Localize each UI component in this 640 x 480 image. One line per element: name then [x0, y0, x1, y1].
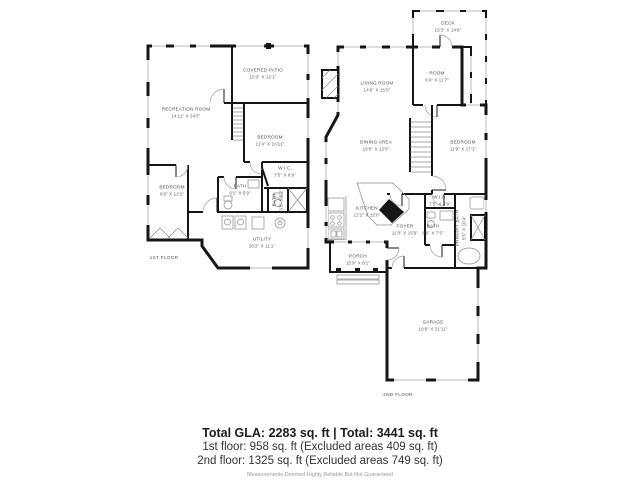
- room-name: BEDROOM: [159, 184, 184, 191]
- floorplan-page: COVERED PATIO 15'3" X 12'1" RECREATION R…: [0, 0, 640, 480]
- room-label-room: ROOM 9'4" X 11'7": [425, 70, 449, 83]
- room-label-wic-1f: W.I.C. 7'5" X 8'9": [274, 165, 296, 178]
- room-label-utility: UTILITY 20'2" X 11'1": [249, 236, 275, 249]
- room-dims: 11'9" X 17'1": [450, 146, 476, 152]
- total-gla-line: Total GLA: 2283 sq. ft | Total: 3441 sq.…: [0, 426, 640, 440]
- room-label-covered-patio: COVERED PATIO 15'3" X 12'1": [243, 67, 283, 80]
- room-name: W.I.C.: [429, 194, 451, 201]
- room-name: COVERED PATIO: [243, 67, 283, 74]
- floorplan-drawing: [0, 0, 640, 480]
- room-label-bath-2f: BATH 8'5" X 7'5": [422, 223, 444, 236]
- room-label-wic-2f: W.I.C. 7'5" X 4'9": [429, 194, 451, 207]
- room-label-garage: GARAGE 19'8" X 21'11": [419, 319, 448, 332]
- room-label-deck: DECK 15'3" X 14'8": [435, 20, 462, 33]
- room-name: BEDROOM: [256, 134, 285, 141]
- room-name: KITCHEN: [354, 205, 381, 212]
- room-label-porch: PORCH 15'9" X 8'1": [346, 253, 370, 266]
- room-label-bath-1f: BATH 9'1" X 5'9": [229, 183, 251, 196]
- room-name: GARAGE: [419, 319, 448, 326]
- room-dims: 15'3" X 12'1": [243, 74, 283, 80]
- room-dims: 9'1" X 5'9": [229, 190, 251, 196]
- room-label-kitchen: KITCHEN 12'2" X 12'0": [354, 205, 381, 218]
- room-dims: 11'4" X 16'11": [256, 141, 285, 147]
- room-dims: 5'5" X 10'4": [461, 210, 467, 246]
- room-label-foyer: FOYER 11'0" X 15'9": [392, 223, 418, 236]
- room-dims: 11'0" X 15'9": [392, 230, 418, 236]
- room-name: PORCH: [346, 253, 370, 260]
- room-label-bedroom-1f-a: BEDROOM 11'4" X 16'11": [256, 134, 285, 147]
- room-name: W.I.C.: [274, 165, 296, 172]
- room-name: FOYER: [392, 223, 418, 230]
- room-dims: 7'5" X 8'9": [274, 172, 296, 178]
- room-dims: 9'9" X 12'2": [159, 191, 184, 197]
- room-dims: 19'8" X 21'11": [419, 326, 448, 332]
- first-floor-tag: 1ST FLOOR: [150, 256, 179, 261]
- room-dims: 15'3" X 14'8": [435, 27, 462, 33]
- room-name: RECREATION ROOM: [162, 106, 211, 113]
- room-label-recreation-room: RECREATION ROOM 14'11" X 34'3": [162, 106, 211, 119]
- first-floor-area-line: 1st floor: 958 sq. ft (Excluded areas 40…: [0, 441, 640, 454]
- room-dims: 15'9" X 8'1": [346, 260, 370, 266]
- room-name: DECK: [435, 20, 462, 27]
- room-dims: 8'5" X 7'5": [422, 230, 444, 236]
- room-dims: 14'11" X 34'3": [162, 113, 211, 119]
- area-summary: Total GLA: 2283 sq. ft | Total: 3441 sq.…: [0, 426, 640, 480]
- room-label-primary-bath: PRIMARY BATH 5'5" X 10'4": [454, 210, 467, 246]
- room-name: BATH: [271, 189, 278, 211]
- room-dims: 9'4" X 11'7": [425, 77, 449, 83]
- room-dims: 19'0" X 12'0": [360, 146, 392, 152]
- room-name: ROOM: [425, 70, 449, 77]
- first-floor-plan: [148, 43, 308, 268]
- room-label-bedroom-1f-b: BEDROOM 9'9" X 12'2": [159, 184, 184, 197]
- room-name: PRIMARY BATH: [454, 210, 461, 246]
- second-floor-area-line: 2nd floor: 1325 sq. ft (Excluded areas 7…: [0, 455, 640, 468]
- room-name: DINING AREA: [360, 139, 392, 146]
- room-label-bedroom-2f: BEDROOM 11'9" X 17'1": [450, 139, 476, 152]
- room-name: BATH: [229, 183, 251, 190]
- room-name: BEDROOM: [450, 139, 476, 146]
- room-dims: 12'2" X 12'0": [354, 212, 381, 218]
- room-dims: 20'2" X 11'1": [249, 243, 275, 249]
- room-name: BATH: [422, 223, 444, 230]
- hatched-box-icon: [288, 188, 307, 212]
- fireplace-icon: [322, 70, 338, 98]
- room-label-living-room: LIVING ROOM 14'6" X 15'0": [361, 80, 394, 93]
- room-dims: 3'5" X 5'2": [278, 189, 284, 211]
- disclaimer-text: Measurements Deemed Highly Reliable But …: [102, 471, 537, 477]
- room-name: UTILITY: [249, 236, 275, 243]
- second-floor-tag: 2ND FLOOR: [383, 393, 413, 398]
- second-floor-plan: [322, 11, 486, 380]
- room-label-bath-small-1f: BATH 3'5" X 5'2": [271, 189, 284, 211]
- room-name: LIVING ROOM: [361, 80, 394, 87]
- room-dims: 14'6" X 15'0": [361, 87, 394, 93]
- room-label-dining-area: DINING AREA 19'0" X 12'0": [360, 139, 392, 152]
- room-dims: 7'5" X 4'9": [429, 201, 451, 207]
